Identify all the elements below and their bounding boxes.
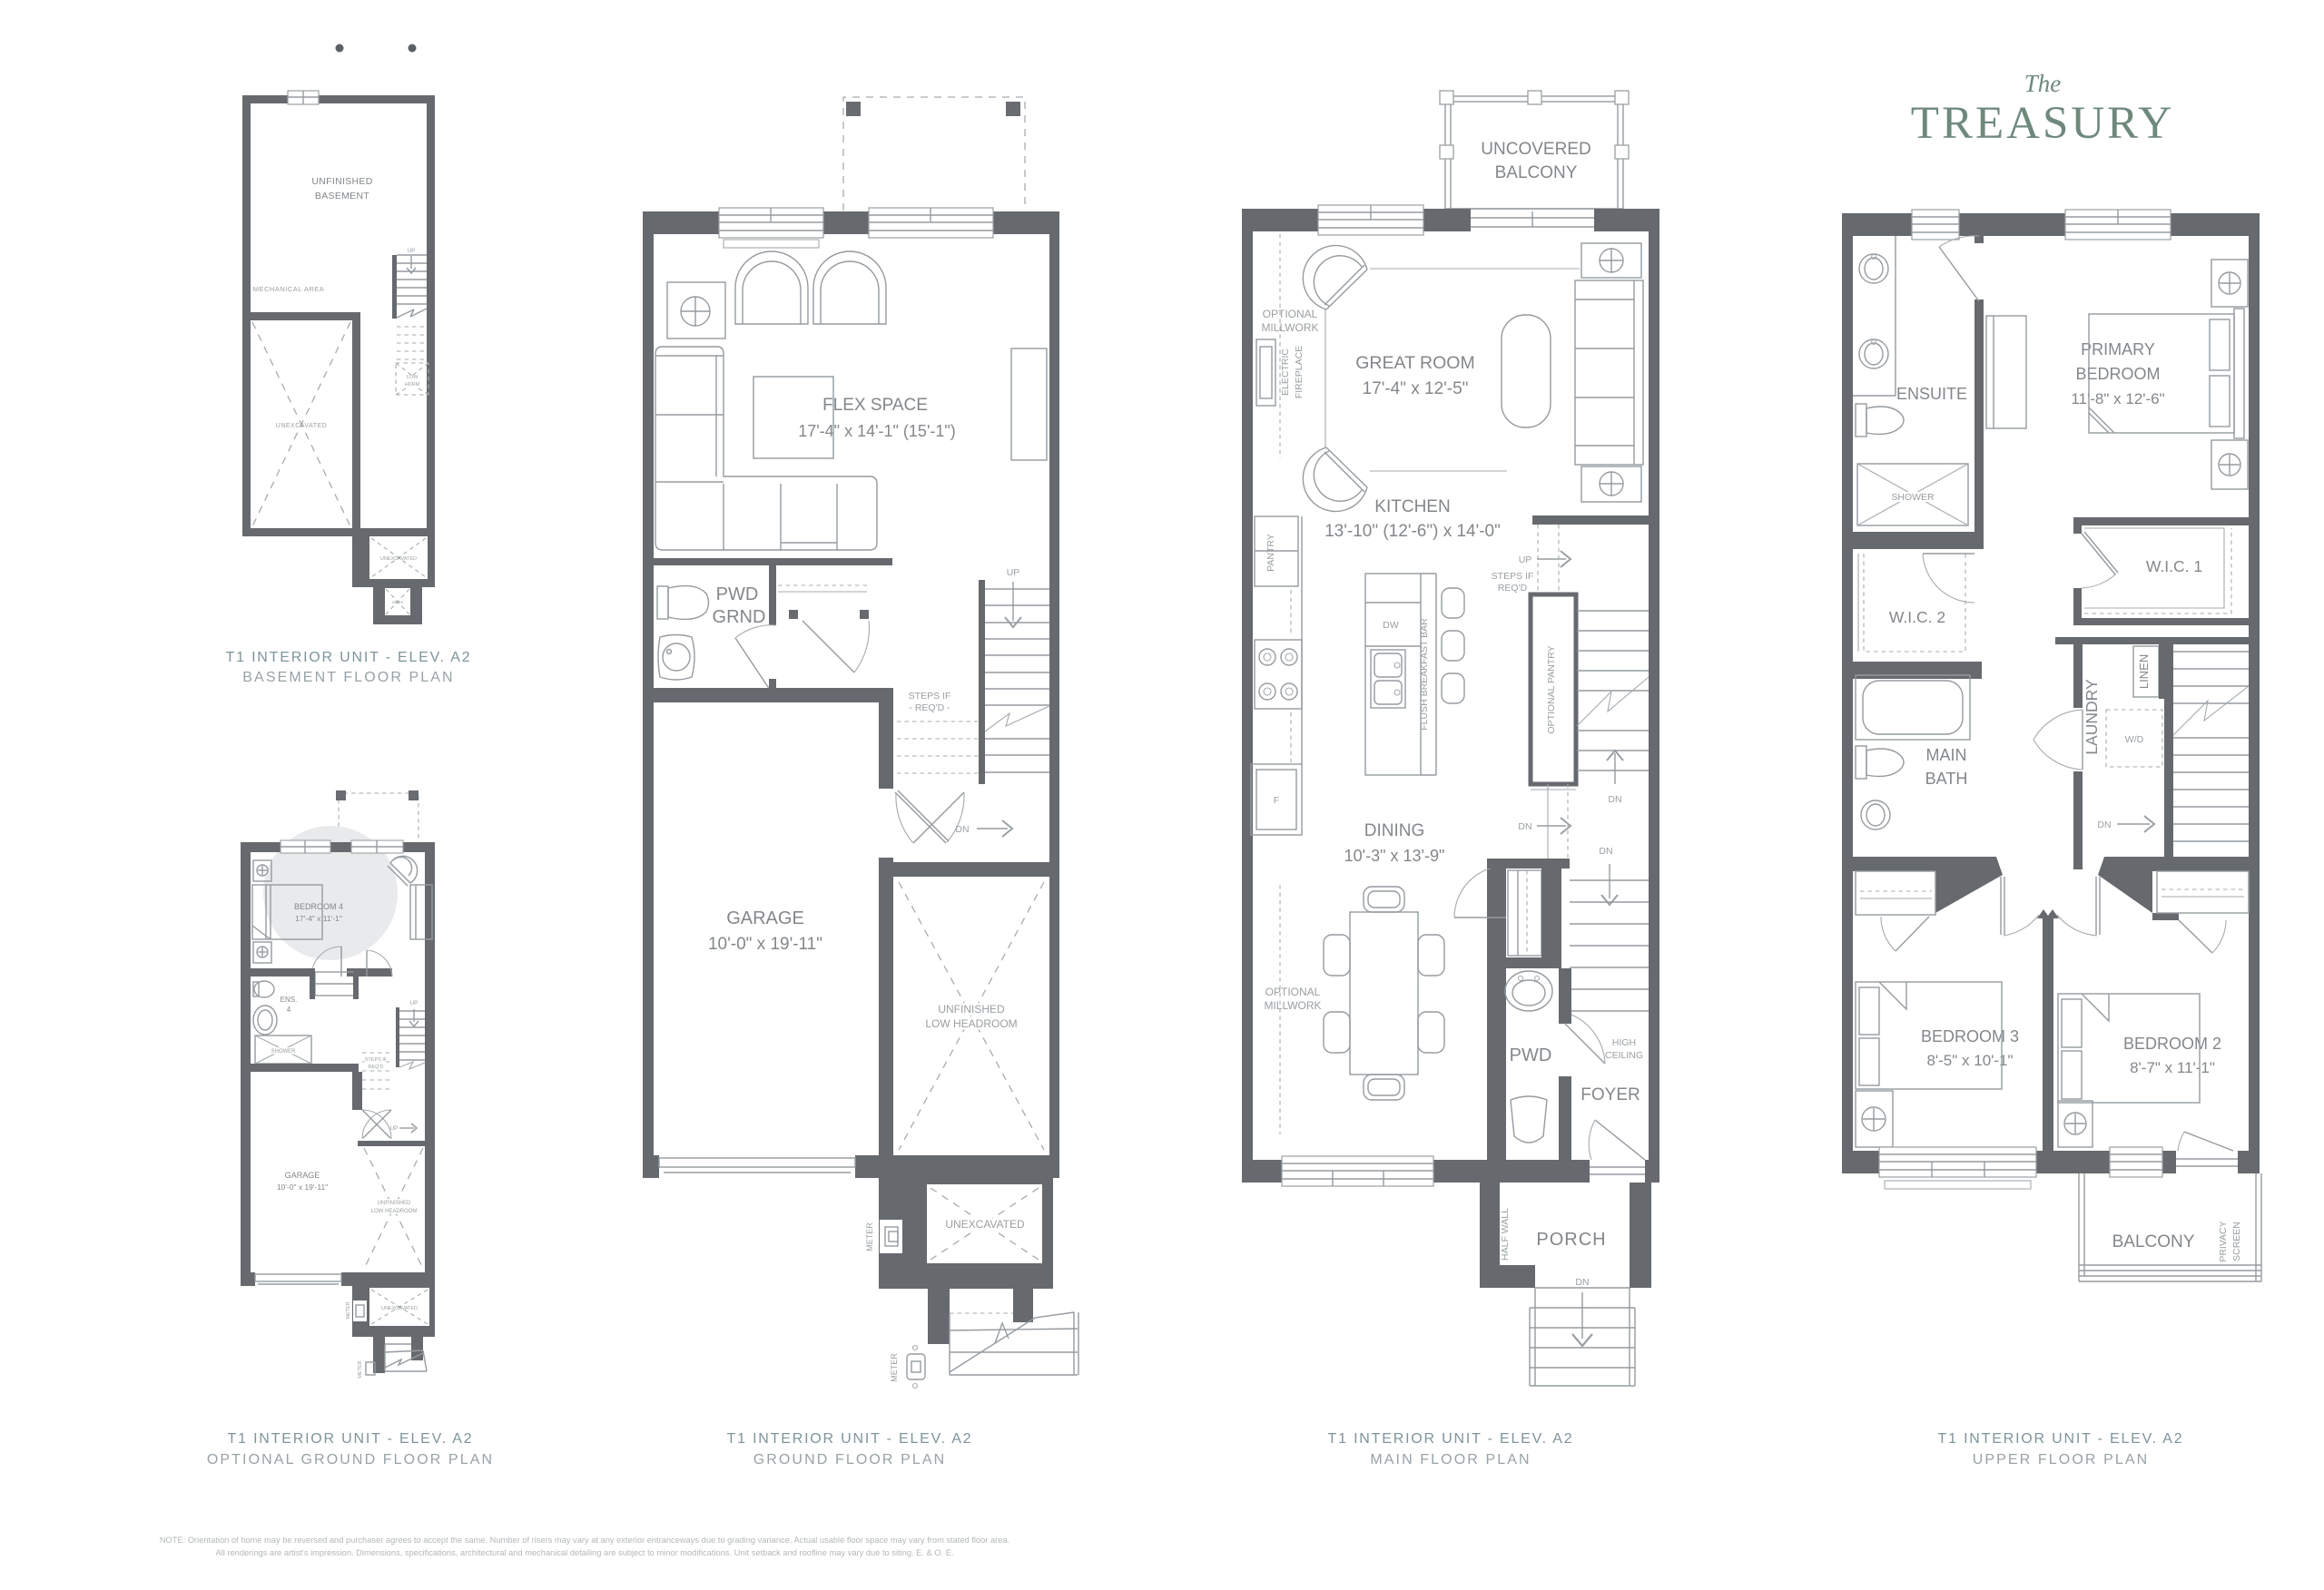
svg-text:10'-3" x 13'-9": 10'-3" x 13'-9" — [1344, 847, 1445, 865]
svg-text:10'-0" x 19'-11": 10'-0" x 19'-11" — [277, 1183, 328, 1192]
svg-text:DN: DN — [955, 824, 969, 835]
svg-text:T1 INTERIOR UNIT - ELEV. A2: T1 INTERIOR UNIT - ELEV. A2 — [1938, 1431, 2184, 1447]
svg-text:DW: DW — [1383, 620, 1399, 631]
svg-text:FOYER: FOYER — [1581, 1085, 1640, 1104]
svg-text:METER: METER — [865, 1222, 874, 1251]
svg-text:STEPS IF: STEPS IF — [1492, 571, 1534, 582]
svg-text:SHOWER: SHOWER — [271, 1049, 297, 1055]
svg-text:W/D: W/D — [2125, 734, 2144, 745]
svg-text:STEPS IF: STEPS IF — [365, 1057, 388, 1063]
svg-text:FIREPLACE: FIREPLACE — [1294, 346, 1305, 398]
svg-text:PWD: PWD — [1510, 1045, 1552, 1065]
svg-text:F: F — [1274, 795, 1279, 806]
svg-text:PRIVACY: PRIVACY — [2218, 1221, 2229, 1261]
svg-text:HIGH: HIGH — [1612, 1037, 1636, 1048]
svg-text:UNEX: UNEX — [392, 600, 404, 604]
svg-text:GREAT ROOM: GREAT ROOM — [1355, 353, 1474, 373]
svg-text:UNFINISHED: UNFINISHED — [938, 1003, 1005, 1016]
svg-text:UP: UP — [1519, 555, 1532, 565]
svg-text:GRND: GRND — [713, 607, 766, 627]
svg-text:UNEXCAVATED: UNEXCAVATED — [945, 1218, 1025, 1231]
svg-text:DN: DN — [2097, 820, 2111, 830]
svg-text:KITCHEN: KITCHEN — [1374, 497, 1450, 516]
svg-text:CEILING: CEILING — [1605, 1050, 1643, 1061]
svg-text:BASEMENT FLOOR PLAN: BASEMENT FLOOR PLAN — [242, 670, 454, 685]
svg-text:BATH: BATH — [1925, 770, 1968, 788]
svg-text:17'-4" x 14'-1" (15'-1"): 17'-4" x 14'-1" (15'-1") — [798, 422, 956, 440]
svg-text:PANTRY: PANTRY — [1265, 534, 1276, 572]
svg-text:BASEMENT: BASEMENT — [315, 191, 369, 201]
svg-text:REQ'D: REQ'D — [369, 1065, 384, 1070]
svg-text:OPTIONAL PANTRY: OPTIONAL PANTRY — [1546, 645, 1557, 733]
svg-text:GARAGE: GARAGE — [726, 908, 804, 928]
svg-text:PORCH: PORCH — [1536, 1230, 1606, 1250]
svg-text:UP: UP — [407, 248, 415, 254]
svg-text:UNCOVERED: UNCOVERED — [1481, 140, 1590, 159]
svg-text:REQ'D: REQ'D — [1498, 583, 1528, 594]
svg-text:BALCONY: BALCONY — [1495, 163, 1578, 182]
svg-text:MAIN FLOOR PLAN: MAIN FLOOR PLAN — [1370, 1452, 1531, 1467]
svg-text:PRIMARY: PRIMARY — [2081, 340, 2155, 358]
svg-text:BEDROOM 4: BEDROOM 4 — [294, 902, 343, 911]
svg-text:W.I.C. 2: W.I.C. 2 — [1889, 608, 1945, 626]
svg-text:DN: DN — [1599, 846, 1612, 857]
svg-text:LAUNDRY: LAUNDRY — [2083, 679, 2101, 755]
svg-text:PWD: PWD — [716, 584, 759, 604]
svg-text:10'-0" x 19'-11": 10'-0" x 19'-11" — [708, 935, 822, 954]
svg-text:ELECTRIC: ELECTRIC — [1280, 348, 1291, 396]
svg-text:UNEXCAVATED: UNEXCAVATED — [276, 423, 327, 429]
svg-text:UNEXCAVATED: UNEXCAVATED — [380, 556, 417, 562]
svg-text:BEDROOM 2: BEDROOM 2 — [2123, 1035, 2221, 1053]
svg-text:UP: UP — [389, 1125, 398, 1132]
svg-text:W.I.C. 1: W.I.C. 1 — [2146, 557, 2202, 575]
svg-text:T1 INTERIOR UNIT - ELEV. A2: T1 INTERIOR UNIT - ELEV. A2 — [228, 1431, 474, 1447]
svg-text:UNEXCAVATED: UNEXCAVATED — [381, 1306, 418, 1311]
svg-text:MILLWORK: MILLWORK — [1261, 321, 1318, 334]
svg-text:LOW HEADROOM: LOW HEADROOM — [371, 1209, 418, 1214]
svg-text:NOTE: Orientation of home may: NOTE: Orientation of home may be reverse… — [160, 1536, 1009, 1545]
svg-text:METER: METER — [358, 1360, 363, 1378]
svg-text:MILLWORK: MILLWORK — [1264, 999, 1321, 1012]
svg-text:17'-4" x 12'-5": 17'-4" x 12'-5" — [1363, 379, 1469, 398]
svg-text:T1 INTERIOR UNIT - ELEV. A2: T1 INTERIOR UNIT - ELEV. A2 — [1328, 1431, 1574, 1447]
svg-text:DINING: DINING — [1364, 821, 1425, 840]
svg-text:- REQ'D -: - REQ'D - — [909, 702, 950, 713]
svg-text:OPTIONAL: OPTIONAL — [1263, 308, 1318, 320]
svg-text:LINEN: LINEN — [2137, 654, 2151, 689]
svg-text:UNFINISHED: UNFINISHED — [378, 1201, 411, 1206]
svg-text:ENS.: ENS. — [281, 996, 298, 1004]
svg-text:LOW: LOW — [407, 375, 419, 380]
svg-text:GARAGE: GARAGE — [285, 1171, 320, 1180]
svg-text:STEPS IF: STEPS IF — [909, 691, 951, 702]
svg-text:TREASURY: TREASURY — [1911, 98, 2174, 149]
svg-text:METER: METER — [346, 1301, 351, 1319]
svg-text:GROUND FLOOR PLAN: GROUND FLOOR PLAN — [753, 1452, 947, 1467]
svg-text:METER: METER — [890, 1353, 899, 1382]
svg-text:DN: DN — [1518, 821, 1531, 832]
svg-text:FLEX SPACE: FLEX SPACE — [822, 396, 928, 415]
svg-text:FLUSH BREAKFAST BAR: FLUSH BREAKFAST BAR — [1419, 618, 1430, 731]
svg-text:BEDROOM 3: BEDROOM 3 — [1921, 1027, 2019, 1045]
svg-text:UP: UP — [409, 1000, 418, 1006]
svg-text:HALF WALL: HALF WALL — [1500, 1208, 1511, 1261]
svg-text:LOW HEADROOM: LOW HEADROOM — [925, 1017, 1017, 1030]
svg-text:DN: DN — [1608, 794, 1621, 805]
svg-text:4: 4 — [287, 1006, 291, 1014]
svg-text:All renderings are artist's im: All renderings are artist's impression. … — [215, 1548, 953, 1557]
svg-text:8'-5" x 10'-1": 8'-5" x 10'-1" — [1926, 1052, 2013, 1069]
svg-text:T1 INTERIOR UNIT - ELEV. A2: T1 INTERIOR UNIT - ELEV. A2 — [727, 1431, 973, 1447]
svg-text:T1 INTERIOR UNIT - ELEV. A2: T1 INTERIOR UNIT - ELEV. A2 — [226, 650, 472, 665]
svg-text:OPTIONAL GROUND FLOOR PLAN: OPTIONAL GROUND FLOOR PLAN — [207, 1452, 494, 1467]
svg-text:The: The — [2024, 70, 2062, 97]
svg-text:OPTIONAL: OPTIONAL — [1265, 986, 1321, 998]
svg-text:13'-10" (12'-6") x 14'-0": 13'-10" (12'-6") x 14'-0" — [1324, 522, 1501, 541]
svg-text:DN: DN — [1575, 1277, 1589, 1288]
svg-text:UPPER FLOOR PLAN: UPPER FLOOR PLAN — [1973, 1452, 2150, 1467]
svg-text:UP: UP — [1007, 567, 1020, 578]
svg-text:8'-7" x 11'-1": 8'-7" x 11'-1" — [2130, 1059, 2215, 1076]
svg-text:UNFINISHED: UNFINISHED — [311, 176, 372, 187]
svg-text:MECHANICAL AREA: MECHANICAL AREA — [253, 285, 325, 293]
svg-text:SHOWER: SHOWER — [1891, 492, 1935, 503]
svg-text:11'-8" x 12'-6": 11'-8" x 12'-6" — [2071, 390, 2164, 407]
svg-text:ENSUITE: ENSUITE — [1896, 385, 1967, 403]
svg-text:17'-4" x 11'-1": 17'-4" x 11'-1" — [295, 914, 342, 923]
svg-text:BALCONY: BALCONY — [2112, 1232, 2195, 1251]
svg-text:HDRM: HDRM — [405, 382, 420, 388]
svg-text:SCREEN: SCREEN — [2231, 1222, 2242, 1261]
svg-text:MAIN: MAIN — [1926, 746, 1967, 764]
